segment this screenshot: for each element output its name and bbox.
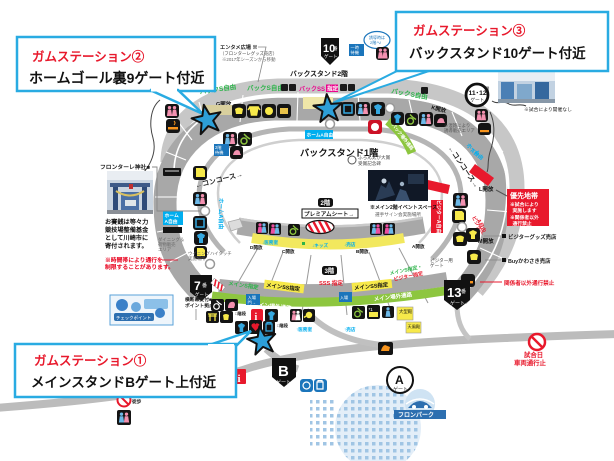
svg-text:バックSS: バックSS (299, 85, 325, 93)
svg-text:※時間帯により通行を: ※時間帯により通行を (105, 256, 163, 264)
svg-text:3階: 3階 (325, 267, 335, 275)
svg-text:※2017年シーズンから移動: ※2017年シーズンから移動 (222, 56, 276, 63)
svg-text:ビジターグッズ売店: ビジターグッズ売店 (508, 233, 557, 241)
svg-text:ゲート: ゲート (324, 53, 338, 60)
svg-text:ふろん太が大賞: ふろん太が大賞 (358, 154, 391, 161)
svg-text:入場: 入場 (340, 294, 348, 300)
svg-text:11･12: 11･12 (469, 90, 487, 97)
svg-text:↓キッズ: ↓キッズ (312, 242, 328, 249)
svg-text:エンタメ広場 ※: エンタメ広場 ※ (220, 43, 258, 51)
svg-text:番: 番 (202, 282, 207, 289)
svg-text:寄付されます。: 寄付されます。 (105, 242, 148, 250)
svg-text:バックスタンド10ゲート付近: バックスタンド10ゲート付近 (409, 45, 586, 61)
svg-text:バックスタンド2階: バックスタンド2階 (290, 69, 348, 78)
svg-text:番: 番 (333, 45, 338, 52)
svg-text:※試合により: ※試合により (510, 201, 539, 208)
svg-text:番: 番 (461, 288, 466, 295)
svg-text:ゲート: ゲート (430, 262, 444, 269)
svg-text:ゲート: ゲート (450, 300, 465, 307)
svg-text:M開放: M開放 (478, 237, 494, 245)
svg-text:優先地帯: 優先地帯 (509, 191, 538, 200)
svg-text:ホームA自由: ホームA自由 (217, 198, 225, 229)
svg-text:お賽銭は等々力: お賽銭は等々力 (105, 218, 148, 226)
svg-text:C開放: C開放 (282, 248, 295, 255)
svg-text:関係者以外通行禁止: 関係者以外通行禁止 (504, 279, 555, 287)
svg-text:誘導販売エリア: 誘導販売エリア (444, 127, 475, 134)
svg-text:選手サイン会実施場所: 選手サイン会実施場所 (375, 211, 421, 218)
svg-text:徒歩: 徒歩 (131, 398, 142, 405)
svg-text:制限することがあります。: 制限することがあります。 (105, 263, 174, 271)
svg-text:ガムステーション③: ガムステーション③ (413, 23, 526, 38)
svg-text:↓売店: ↓売店 (344, 241, 356, 248)
svg-text:ガムステーション①: ガムステーション① (34, 353, 147, 368)
svg-text:通行禁止: 通行禁止 (513, 220, 532, 227)
svg-text:A: A (395, 373, 404, 387)
svg-text:実施場所: 実施場所 (188, 255, 206, 262)
svg-text:i: i (238, 373, 241, 385)
svg-text:競技場整備基金: 競技場整備基金 (105, 226, 149, 234)
svg-text:ホームA自由: ホームA自由 (307, 132, 334, 139)
svg-text:L開放: L開放 (479, 185, 494, 193)
svg-text:ゲート: ゲート (195, 291, 209, 298)
svg-text:↑医務室: ↑医務室 (296, 326, 312, 333)
svg-text:B開放: B開放 (356, 248, 369, 255)
svg-text:横断幕受付■: 横断幕受付■ (185, 296, 212, 303)
svg-text:ガムステーション②: ガムステーション② (32, 49, 145, 64)
svg-text:□階段: □階段 (277, 322, 289, 329)
svg-text:SSS 指定: SSS 指定 (319, 279, 343, 287)
svg-text:ゲート: ゲート (276, 379, 291, 386)
svg-text:ポイント拠点: ポイント拠点 (185, 302, 214, 309)
svg-text:↑売店: ↑売店 (344, 326, 356, 333)
svg-text:A自由: A自由 (165, 218, 178, 225)
svg-text:A開放: A開放 (412, 243, 425, 250)
svg-text:ホーム: ホーム (165, 212, 179, 219)
svg-text:番: 番 (486, 86, 490, 91)
svg-text:※試合により開催なし: ※試合により開催なし (524, 106, 572, 113)
svg-text:指定: 指定 (327, 85, 339, 93)
svg-text:2階: 2階 (321, 199, 331, 207)
svg-text:として川崎市に: として川崎市に (105, 234, 148, 242)
svg-text:プレミアムシート→: プレミアムシート→ (304, 210, 354, 218)
svg-text:受賞記念碑: 受賞記念碑 (358, 160, 381, 167)
svg-text:2階へ!: 2階へ! (370, 39, 381, 45)
svg-text:フロンターレ神社■: フロンターレ神社■ (100, 163, 150, 171)
svg-text:*1: *1 (369, 307, 374, 312)
svg-text:7: 7 (194, 279, 201, 293)
svg-text:車両通行止: 車両通行止 (514, 358, 547, 367)
svg-text:ゲート: ゲート (393, 386, 408, 393)
svg-text:ゲート: ゲート (471, 97, 485, 104)
svg-text:※関係者以外: ※関係者以外 (510, 214, 539, 221)
svg-text:待機: 待機 (351, 49, 360, 56)
svg-text:大型殿: 大型殿 (399, 308, 413, 315)
svg-text:待機: 待機 (215, 149, 224, 156)
svg-text:フロンパーク: フロンパーク (398, 411, 434, 419)
svg-text:13: 13 (447, 285, 461, 300)
svg-text:（フロンターレグッズ売店）: （フロンターレグッズ売店） (220, 50, 277, 57)
svg-text:実施します: 実施します (513, 207, 537, 214)
svg-text:↓医務室: ↓医務室 (262, 239, 278, 246)
svg-text:ホームゴール裏9ゲート付近: ホームゴール裏9ゲート付近 (29, 70, 204, 86)
svg-text:D開放: D開放 (250, 244, 263, 251)
svg-text:試合日: 試合日 (524, 350, 543, 359)
svg-text:B: B (278, 363, 289, 380)
svg-text:□階段: □階段 (235, 310, 247, 317)
svg-text:チェックポイント: チェックポイント (116, 315, 151, 322)
svg-text:バックS自由: バックS自由 (247, 83, 284, 92)
svg-text:Buyかわさき売店: Buyかわさき売店 (508, 257, 551, 265)
svg-text:※メイン2階イベントスペース: ※メイン2階イベントスペース (370, 204, 437, 211)
svg-text:メインスタンドBゲート上付近: メインスタンドBゲート上付近 (31, 374, 216, 390)
